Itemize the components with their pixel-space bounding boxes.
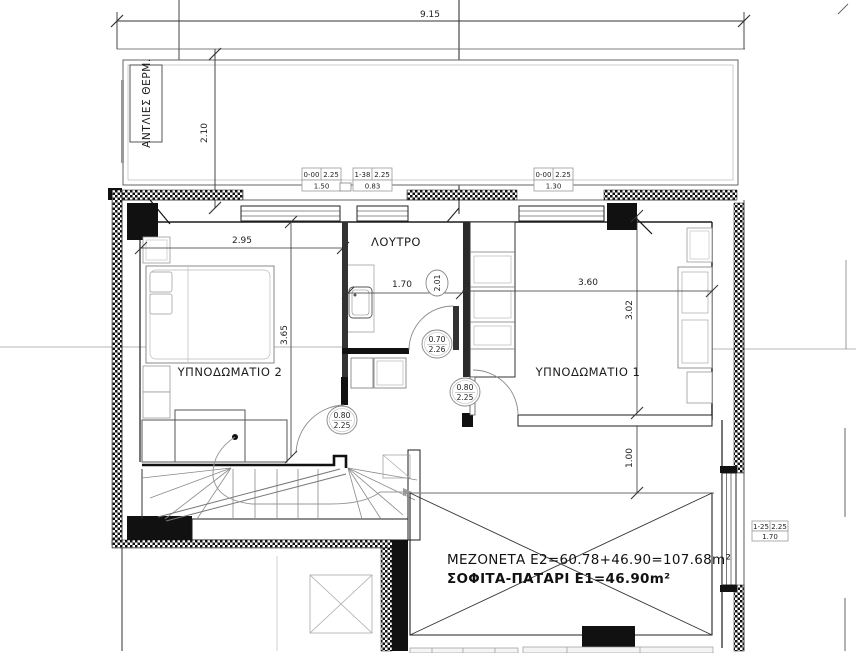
window-tag-w3: 0-00 2.25 1.30 bbox=[534, 168, 573, 191]
bath-door-width: 0.70 bbox=[429, 335, 446, 344]
column bbox=[607, 203, 637, 230]
bathroom-right-wall bbox=[463, 222, 470, 377]
terrace: ΑΝΤΛΙΕΣ ΘΕΡΜ. bbox=[117, 49, 745, 185]
w3-sill: 0-00 bbox=[536, 171, 552, 179]
w4-head: 2.25 bbox=[771, 523, 787, 531]
door-tag-bedroom1: 0.80 2.25 bbox=[450, 378, 480, 406]
door-tag-hall: 0.80 2.25 bbox=[327, 406, 357, 434]
dim-bedroom1-depth: 3.02 bbox=[625, 300, 635, 320]
wall-solid bbox=[392, 540, 408, 651]
area-label-sofita: ΣΟΦΙΤΑ-ΠΑΤΑΡΙ Ε1=46.90m² bbox=[447, 571, 670, 587]
room-label-bathroom: ΛΟΥΤΡΟ bbox=[371, 235, 421, 249]
window-post-marker bbox=[340, 183, 351, 191]
hall-door-height: 2.25 bbox=[334, 421, 351, 430]
skylight bbox=[277, 556, 372, 651]
w2-sill: 1-38 bbox=[355, 171, 371, 179]
bathroom-bottom-wall bbox=[342, 348, 409, 354]
hall-door-width: 0.80 bbox=[334, 411, 351, 420]
dim-bedroom1-width: 3.60 bbox=[578, 278, 598, 288]
stairs bbox=[142, 410, 417, 521]
w3-head: 2.25 bbox=[555, 171, 571, 179]
bedroom1-door-width: 0.80 bbox=[457, 383, 474, 392]
area-label-mezoneta: ΜΕΖΟΝΕΤΑ Ε2=60.78+46.90=107.68m² bbox=[447, 552, 731, 568]
bed bbox=[678, 267, 712, 368]
w2-width: 0.83 bbox=[365, 183, 381, 191]
window-tag-w4: 1-25 2.25 1.70 bbox=[752, 521, 788, 541]
w1-sill: 0-00 bbox=[304, 171, 320, 179]
bedroom1-door-height: 2.25 bbox=[457, 393, 474, 402]
wardrobe bbox=[470, 222, 515, 377]
column bbox=[127, 203, 158, 240]
room-label-bedroom1: ΥΠΝΟΔΩΜΑΤΙΟ 1 bbox=[535, 365, 641, 379]
bedroom1-furniture bbox=[678, 228, 712, 403]
dim-bedroom2-depth: 3.65 bbox=[280, 325, 290, 345]
height-tag-2.01: 2.01 bbox=[426, 270, 448, 296]
w4-sill: 1-25 bbox=[753, 523, 769, 531]
window-tag-w1: 0-00 2.25 1.50 bbox=[302, 168, 341, 191]
w1-width: 1.50 bbox=[314, 183, 330, 191]
dryer bbox=[374, 358, 406, 388]
w4-width: 1.70 bbox=[762, 533, 778, 541]
dim-overall-width: 9.15 bbox=[420, 10, 440, 20]
dim-bedroom2-width: 2.95 bbox=[232, 236, 252, 246]
room-label-bedroom2: ΥΠΝΟΔΩΜΑΤΙΟ 2 bbox=[177, 365, 283, 379]
floorplan-sheet: ΑΝΤΛΙΕΣ ΘΕΡΜ. 9.15 2.10 0-00 2.25 1.50 1… bbox=[0, 0, 856, 653]
w1-head: 2.25 bbox=[323, 171, 339, 179]
pump-area-label: ΑΝΤΛΙΕΣ ΘΕΡΜ. bbox=[141, 58, 153, 148]
wall-solid bbox=[127, 516, 192, 540]
window-1.70-right-wall bbox=[720, 466, 737, 592]
bath-door-height: 2.26 bbox=[429, 345, 446, 354]
floor-plan-canvas: ΑΝΤΛΙΕΣ ΘΕΡΜ. 9.15 2.10 0-00 2.25 1.50 1… bbox=[0, 0, 856, 653]
dim-bathroom-width: 1.70 bbox=[392, 280, 412, 290]
w2-head: 2.25 bbox=[374, 171, 390, 179]
window-1.30 bbox=[519, 206, 604, 221]
dim-terrace-depth: 2.10 bbox=[200, 123, 210, 143]
tag-2.01: 2.01 bbox=[433, 274, 442, 291]
hall-door-jamb bbox=[341, 377, 348, 405]
stair-treads bbox=[142, 468, 417, 519]
window-0.83 bbox=[357, 206, 408, 221]
door-tag-bathroom: 0.70 2.26 bbox=[422, 330, 452, 358]
walking-line bbox=[213, 437, 403, 504]
wall-solid bbox=[582, 626, 635, 647]
window-tag-boxes: 0-00 2.25 1.50 1-38 2.25 0.83 0-00 2.25 … bbox=[302, 168, 788, 541]
window-tag-w2: 1-38 2.25 0.83 bbox=[353, 168, 392, 191]
w3-width: 1.30 bbox=[546, 183, 562, 191]
washer bbox=[351, 358, 373, 388]
bedroom2-furniture bbox=[143, 237, 274, 418]
void-area: ΜΕΖΟΝΕΤΑ Ε2=60.78+46.90=107.68m² ΣΟΦΙΤΑ-… bbox=[408, 493, 731, 647]
window-1.50 bbox=[241, 206, 340, 221]
dim-walkway-depth: 1.00 bbox=[625, 448, 635, 468]
lower-floor-fragments bbox=[410, 647, 713, 653]
